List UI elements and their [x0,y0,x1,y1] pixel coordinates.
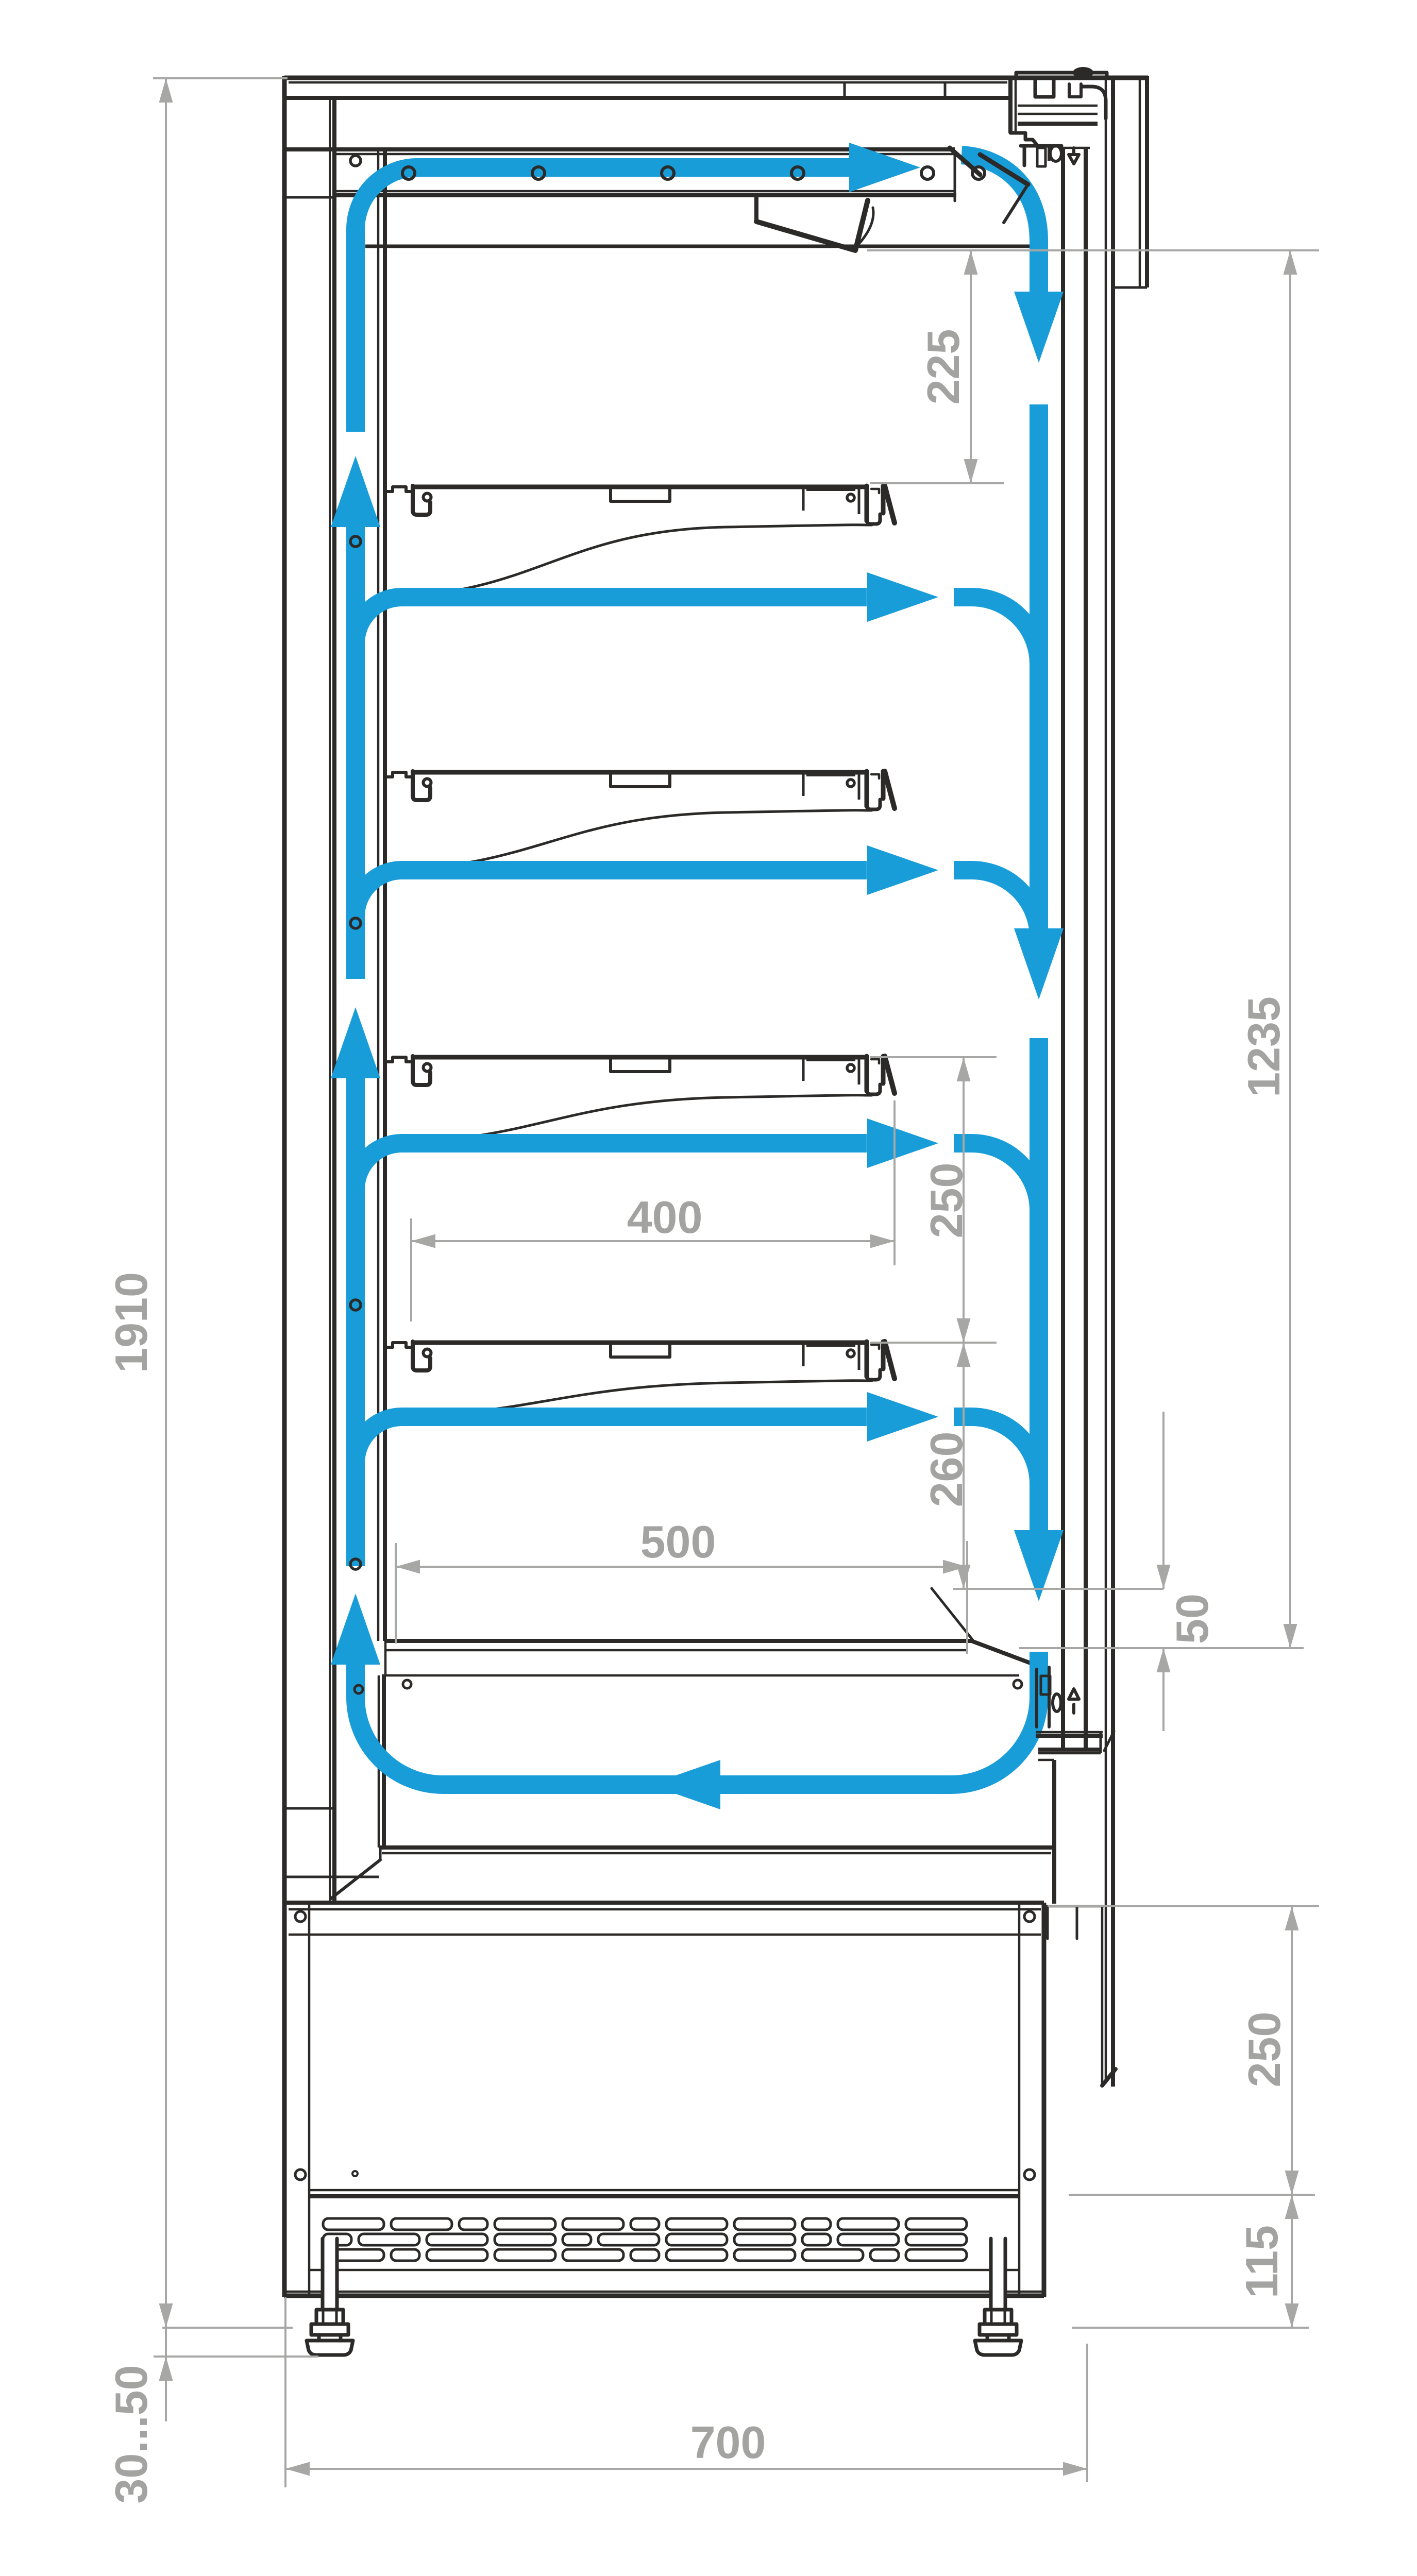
svg-text:1910: 1910 [106,1272,157,1373]
svg-text:500: 500 [640,1516,716,1567]
svg-text:700: 700 [690,2417,766,2468]
svg-text:1235: 1235 [1238,996,1289,1097]
svg-text:50: 50 [1167,1594,1218,1644]
svg-text:250: 250 [1239,2012,1290,2088]
svg-text:30...50: 30...50 [106,2365,157,2503]
svg-text:260: 260 [921,1432,972,1507]
svg-text:115: 115 [1236,2225,1287,2298]
svg-text:250: 250 [921,1163,972,1239]
svg-text:400: 400 [627,1192,703,1243]
svg-text:225: 225 [918,329,969,405]
